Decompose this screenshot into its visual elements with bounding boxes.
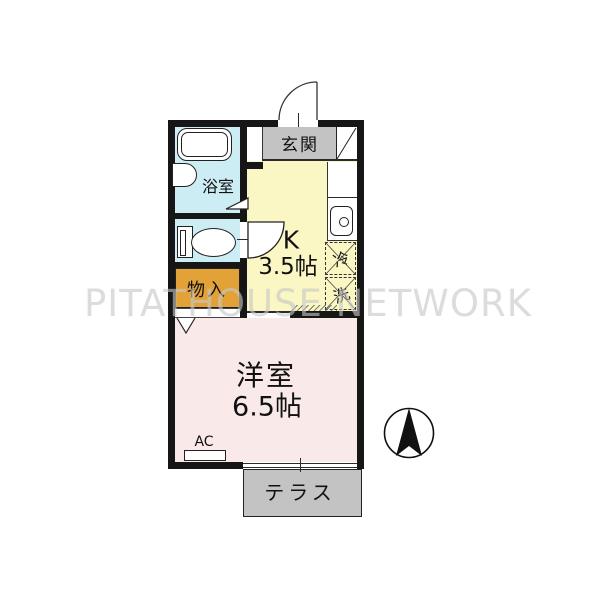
wall-bottom-left <box>168 462 243 469</box>
toilet-door-tick <box>237 239 249 240</box>
counter-shelf-line <box>327 197 357 198</box>
terrace-label: テラス <box>264 477 336 506</box>
shoe-cabinet-icon <box>336 127 357 160</box>
wall-toilet-storage <box>175 262 247 268</box>
entrance-kitchen-line <box>263 159 357 161</box>
storage-label: 物入 <box>187 276 227 302</box>
entrance-pillar <box>247 127 263 162</box>
wall-top-left <box>168 120 278 127</box>
kitchen-size-label: 3.5帖 <box>258 247 318 281</box>
floorplan-canvas: 玄関 浴室 物入 K 3.5帖 冷 洗 洋室 6.5帖 AC テラス PITAT… <box>0 0 600 600</box>
kitchen-sink-icon <box>330 206 353 236</box>
wall-pillar-bottom <box>240 162 263 169</box>
kitchen-room-open-line <box>247 311 290 313</box>
bathtub-icon <box>177 128 232 161</box>
main-room-size-label: 6.5帖 <box>232 385 302 424</box>
ac-unit <box>184 450 226 461</box>
wall-bath-toilet <box>175 213 247 219</box>
entrance-door-tick <box>298 113 299 127</box>
washbasin-icon <box>172 163 197 187</box>
window-center-tick <box>300 458 301 472</box>
ac-label: AC <box>194 434 213 450</box>
wall-divider-vertical-upper <box>240 120 247 222</box>
wall-kitchen-room <box>290 311 364 318</box>
wall-right <box>357 120 364 469</box>
entrance-label: 玄関 <box>281 131 319 156</box>
closet-door-strip <box>175 308 240 318</box>
bathroom-label: 浴室 <box>202 173 234 197</box>
north-compass-icon <box>385 408 434 458</box>
